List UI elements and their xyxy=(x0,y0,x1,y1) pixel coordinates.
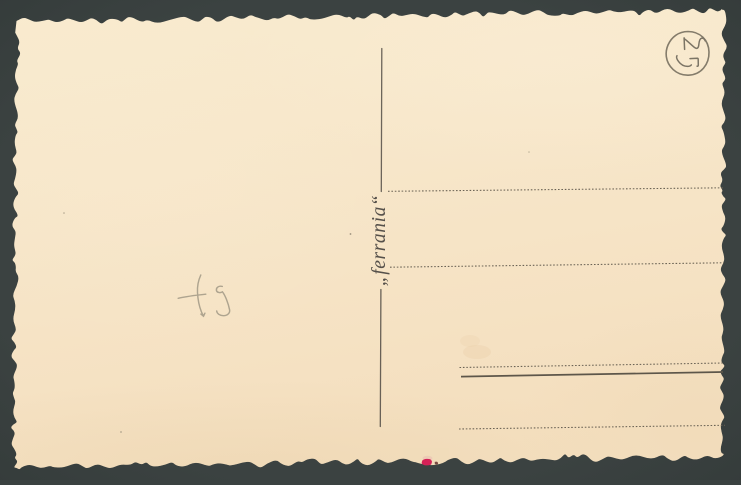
svg-text:„ferrania“: „ferrania“ xyxy=(369,195,390,287)
